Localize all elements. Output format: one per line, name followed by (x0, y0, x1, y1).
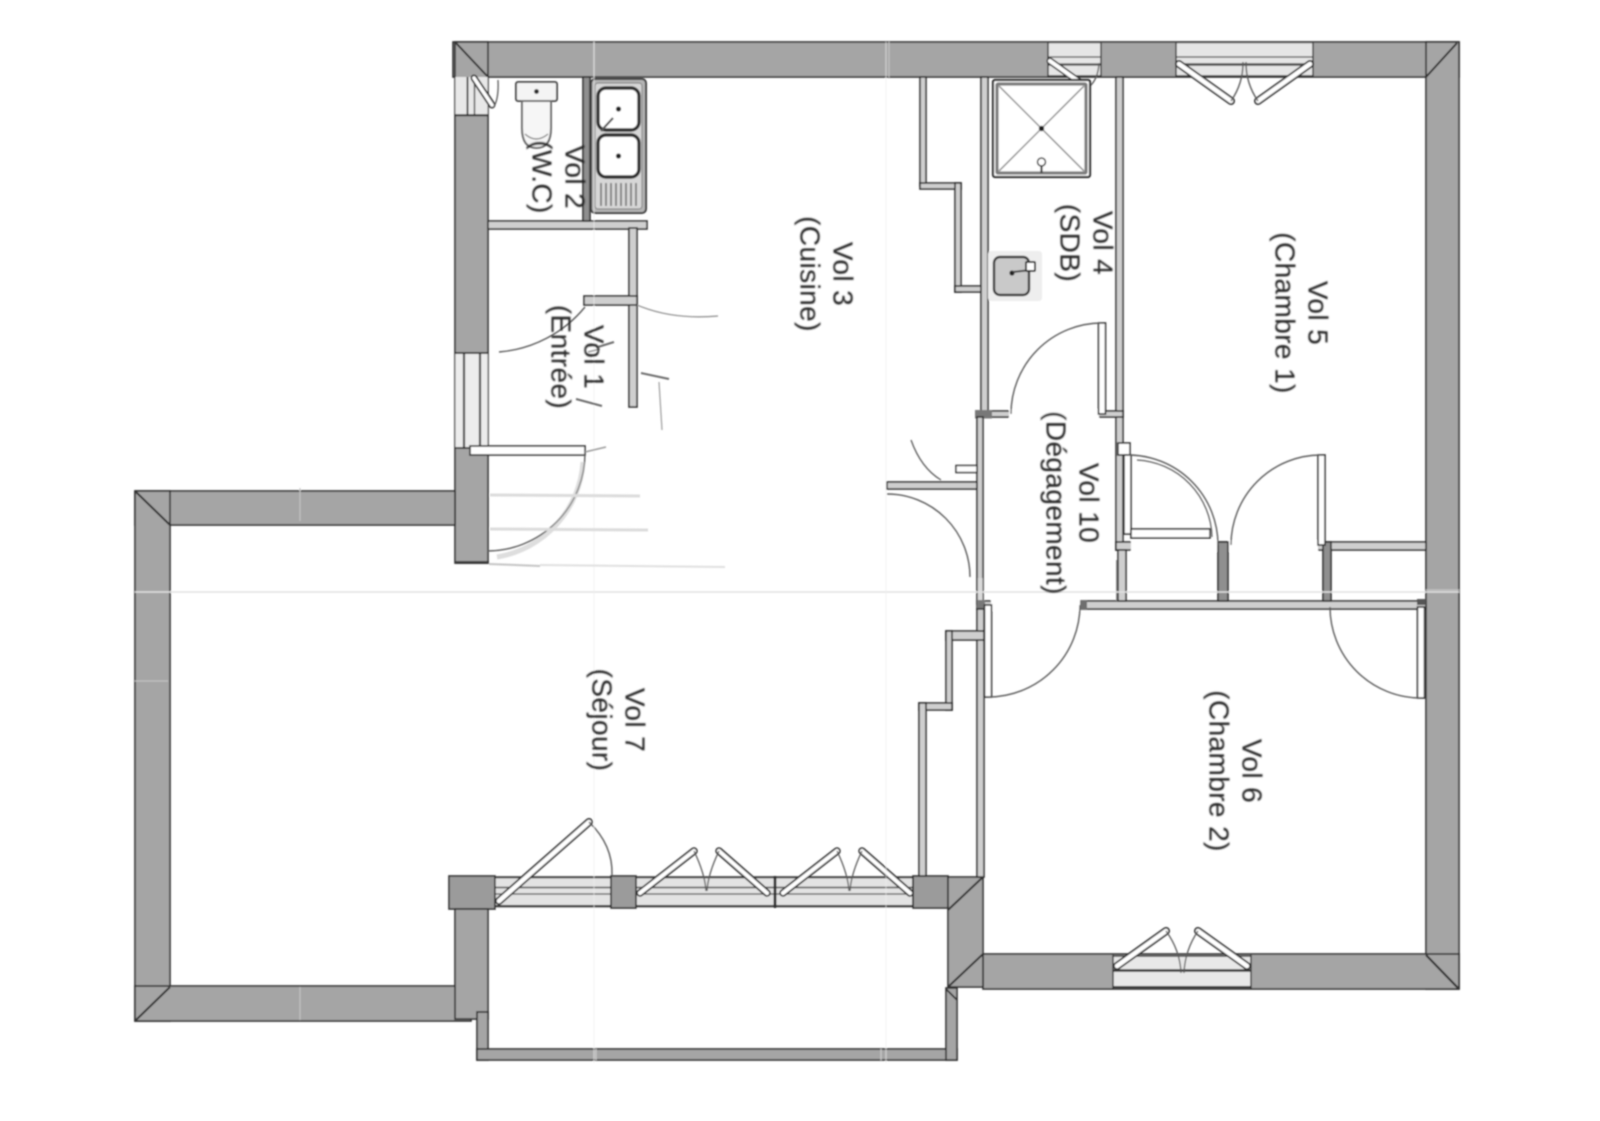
svg-text:(Dégagement): (Dégagement) (1041, 411, 1072, 595)
svg-text:Vol 1: Vol 1 (579, 325, 610, 389)
svg-text:Vol 3: Vol 3 (828, 242, 859, 306)
svg-text:(Chambre 2): (Chambre 2) (1204, 690, 1235, 852)
svg-text:(Entrée): (Entrée) (546, 305, 577, 409)
svg-text:Vol 5: Vol 5 (1303, 281, 1334, 345)
svg-text:Vol 7: Vol 7 (620, 688, 651, 752)
svg-text:Vol 6: Vol 6 (1237, 739, 1268, 803)
svg-text:(Séjour): (Séjour) (587, 669, 618, 772)
svg-text:Vol 4: Vol 4 (1088, 211, 1119, 275)
svg-text:Vol 10: Vol 10 (1074, 463, 1105, 543)
svg-text:(W.C): (W.C) (527, 140, 558, 214)
svg-text:(SDB): (SDB) (1055, 204, 1086, 282)
svg-text:Vol 2: Vol 2 (560, 145, 591, 209)
svg-text:(Chambre 1): (Chambre 1) (1270, 232, 1301, 394)
svg-text:(Cuisine): (Cuisine) (795, 216, 826, 332)
